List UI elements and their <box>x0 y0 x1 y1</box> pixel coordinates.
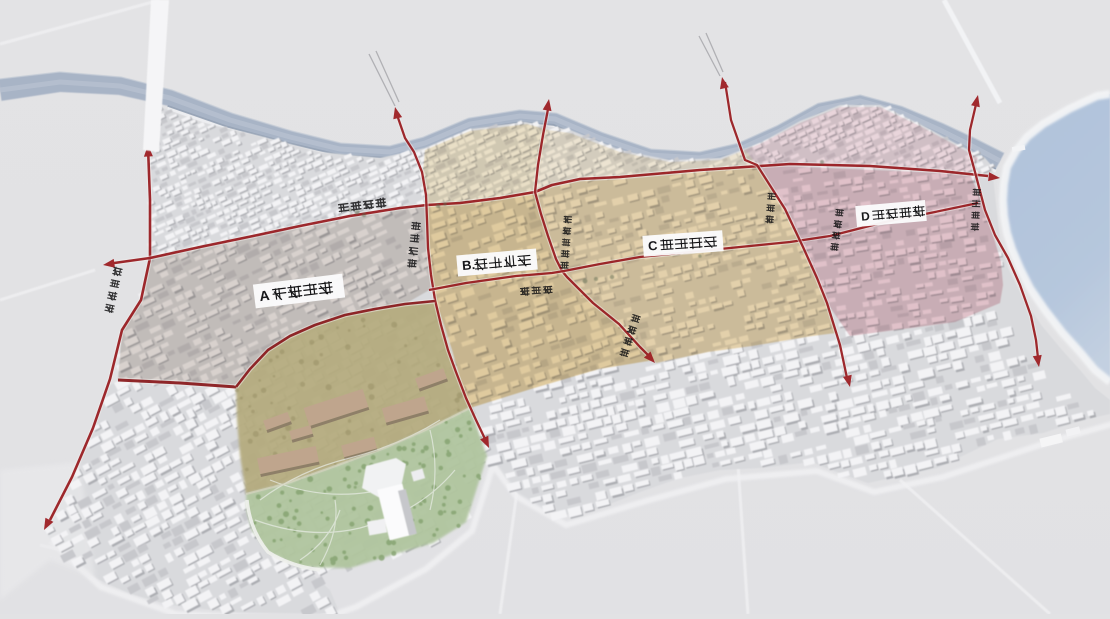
svg-text:D: D <box>861 209 871 224</box>
svg-text:B.: B. <box>461 257 475 273</box>
svg-text:A: A <box>258 287 270 304</box>
svg-text:C: C <box>648 238 659 254</box>
